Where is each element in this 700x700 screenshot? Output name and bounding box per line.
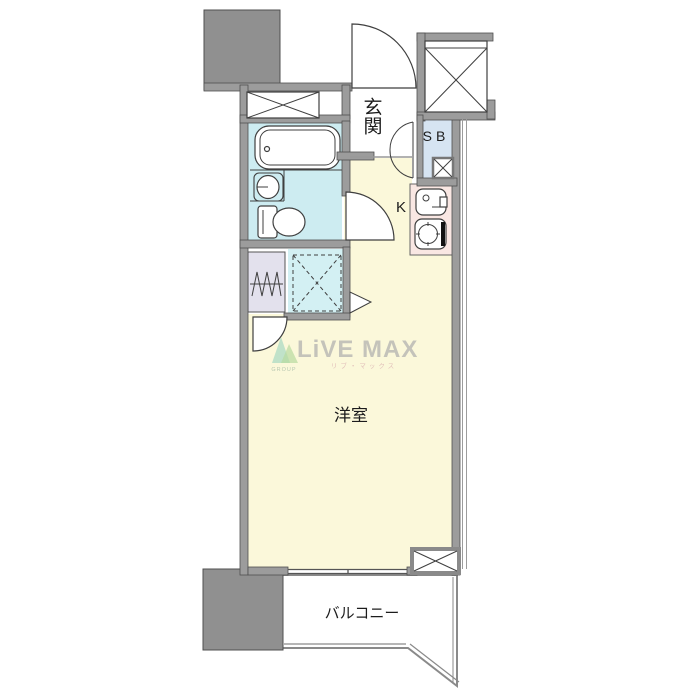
balcony-label: バルコニー bbox=[325, 605, 400, 622]
floor-plan-image: 玄関 SB K 洋室 バルコニー GROUP LiVE MAX リブ・マックス bbox=[0, 0, 700, 700]
elevator-shaft-box bbox=[425, 41, 487, 112]
watermark-kana-text: リブ・マックス bbox=[331, 361, 397, 370]
balcony-floor bbox=[282, 575, 457, 686]
closet-right-wall bbox=[342, 85, 350, 119]
kitchen-label: K bbox=[396, 199, 406, 216]
entrance-label: 玄関 bbox=[361, 97, 382, 135]
shoe-box-label: SB bbox=[423, 128, 450, 144]
watermark-brand-text: LiVE MAX bbox=[297, 336, 418, 363]
bathtub-drain bbox=[265, 147, 270, 152]
toilet-bowl bbox=[273, 208, 305, 236]
floor-plan-svg: 玄関 SB K 洋室 バルコニー GROUP LiVE MAX リブ・マックス bbox=[0, 0, 700, 700]
stove-panel bbox=[441, 222, 445, 246]
structure-block-bottom-left bbox=[203, 569, 283, 650]
entrance-right-wall bbox=[417, 115, 423, 178]
structure-block-top-left bbox=[204, 10, 280, 90]
laundry-wall-right bbox=[343, 247, 350, 317]
watermark-group-text: GROUP bbox=[271, 367, 296, 373]
entrance-door-swing bbox=[352, 24, 416, 88]
wall-top bbox=[204, 83, 352, 91]
entrance-wall-stub bbox=[337, 152, 374, 160]
shaft-wall-bottom bbox=[417, 112, 495, 120]
washer-pan bbox=[248, 252, 285, 312]
shaft-wall-stub bbox=[487, 100, 495, 119]
western-room-label: 洋室 bbox=[334, 406, 368, 425]
laundry-wall-bottom bbox=[284, 313, 350, 320]
laundry-area bbox=[248, 249, 346, 316]
kitchen-unit bbox=[410, 184, 453, 255]
shaft-wall-top bbox=[417, 33, 493, 41]
shaft-wall-left bbox=[417, 33, 425, 121]
wall-left bbox=[240, 85, 248, 575]
bath-wall-bottom bbox=[240, 240, 350, 248]
kitchen-faucet bbox=[440, 197, 447, 207]
wall-bottom-left bbox=[248, 567, 288, 575]
